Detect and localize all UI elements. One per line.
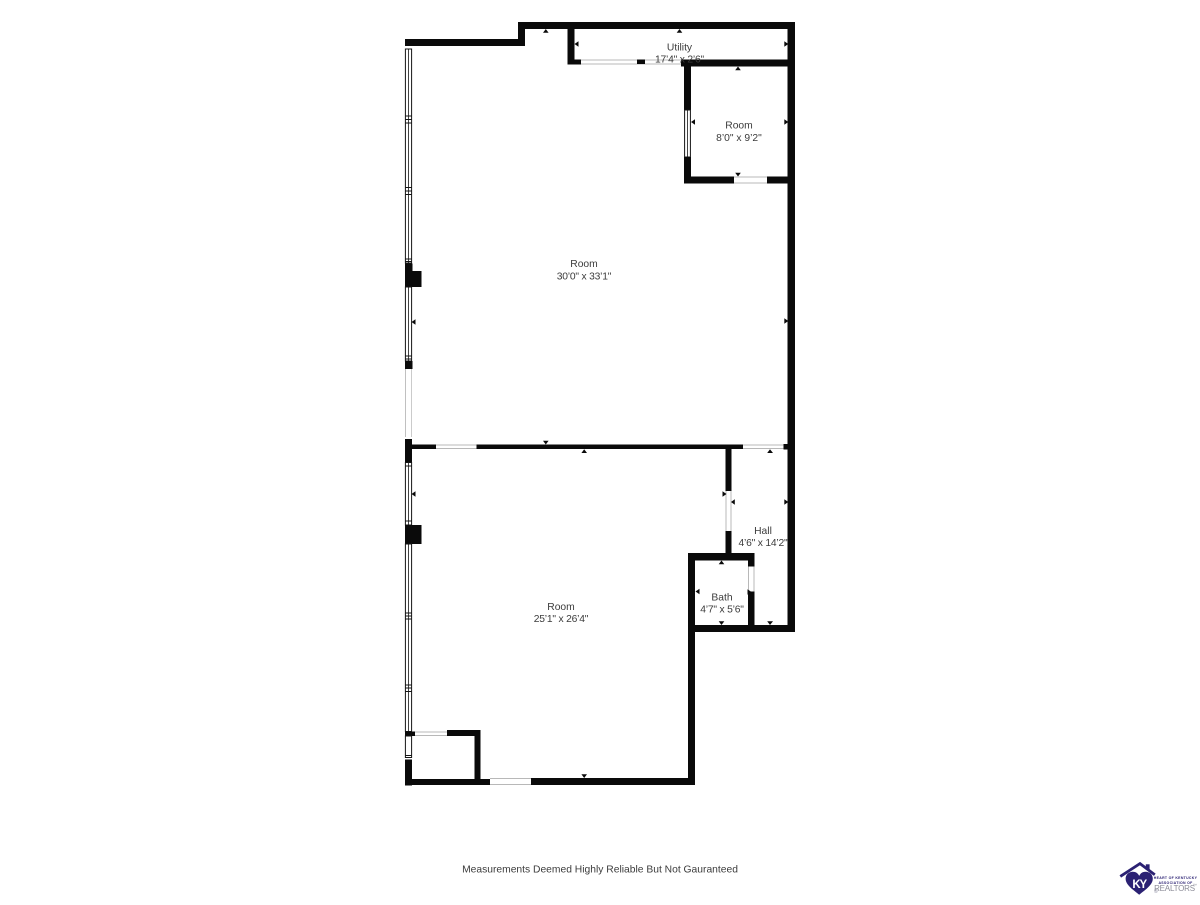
svg-text:Room: Room: [725, 121, 752, 132]
svg-text:Room: Room: [570, 259, 597, 270]
svg-text:REALTORS: REALTORS: [1154, 884, 1195, 893]
svg-text:25’1" x 26’4": 25’1" x 26’4": [534, 614, 589, 625]
svg-text:Measurements Deemed Highly Rel: Measurements Deemed Highly Reliable But …: [462, 865, 738, 876]
svg-text:Bath: Bath: [711, 593, 732, 604]
svg-text:HEART OF KENTUCKY: HEART OF KENTUCKY: [1154, 876, 1198, 880]
svg-text:8’0" x 9’2": 8’0" x 9’2": [716, 133, 762, 144]
svg-text:4’7" x 5’6": 4’7" x 5’6": [700, 605, 744, 616]
svg-text:17’4" x 2’6": 17’4" x 2’6": [655, 55, 705, 66]
svg-text:™: ™: [1193, 883, 1197, 888]
svg-text:KY: KY: [1132, 879, 1147, 891]
svg-text:Utility: Utility: [667, 42, 693, 53]
svg-text:4’6" x 14’2": 4’6" x 14’2": [739, 538, 789, 549]
svg-text:Hall: Hall: [754, 526, 772, 537]
svg-text:30’0" x 33’1": 30’0" x 33’1": [557, 271, 612, 282]
svg-text:Room: Room: [547, 602, 574, 613]
